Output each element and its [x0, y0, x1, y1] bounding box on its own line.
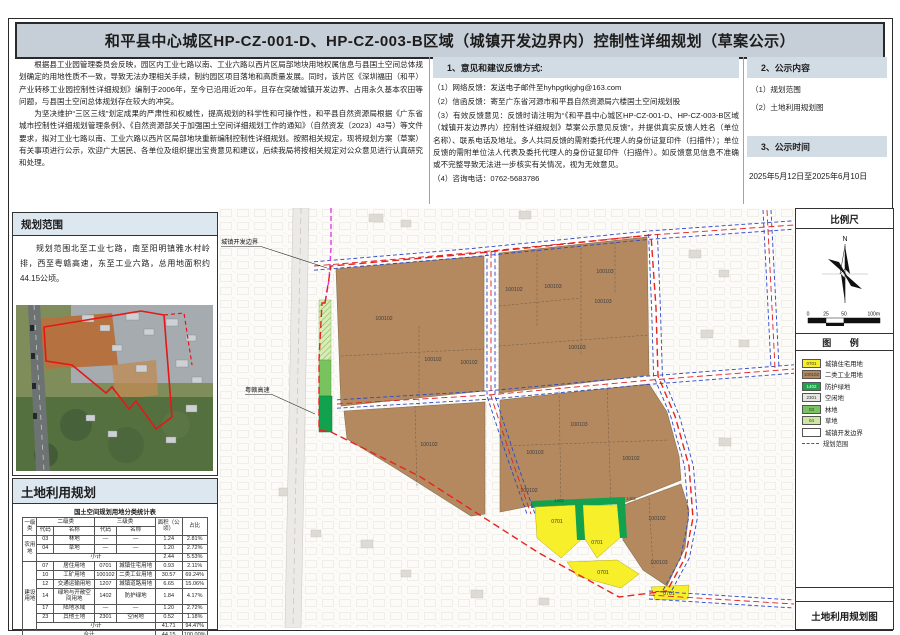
scale-tick-25: 25	[823, 312, 829, 318]
table-row: 10工矿用地 100102二类工业用地 30.5769.24%	[23, 571, 207, 580]
th-name2: 名称	[54, 526, 95, 535]
table-row: 04草地 —— 1.202.72%	[23, 544, 207, 553]
map-parcel-label: 0701	[591, 540, 603, 546]
table-row-subtotal: 小计 2.445.53%	[23, 553, 207, 562]
legend-item: 规划范围	[802, 439, 889, 448]
intro-paragraph-2: 为坚决维护“三区三线”划定成果的严肃性和权威性，提高规划的科学性和可操作性，和平…	[19, 108, 423, 169]
legend-label: 草地	[825, 416, 838, 425]
map-parcel-label: 0701	[597, 570, 609, 576]
feedback-heading: 1、意见和建议反馈方式:	[433, 57, 739, 78]
map-parcel-label: 100102	[375, 316, 392, 322]
compass-area: N 0 25 50 100m	[796, 229, 893, 333]
column-divider-2	[743, 57, 744, 204]
map-parcel-label: 100103	[526, 450, 543, 456]
legend-item: 1402 防护绿地	[802, 382, 889, 391]
landuse-map: 100102 100102 100102 100102 100103 10010…	[219, 208, 795, 628]
content-item-1: （1）规划范围	[751, 84, 887, 96]
legend-item: 2301 空闲地	[802, 393, 889, 402]
map-parcel-label: 100103	[650, 560, 667, 566]
feedback-item-valid: （3）有效反馈意见：反馈时请注明为“《和平县中心城区HP-CZ-001-D、HP…	[433, 110, 739, 171]
table-row: 12交通运输用地 1207城镇道路用地 6.6515.06%	[23, 580, 207, 589]
landuse-panel-heading: 土地利用规划	[13, 479, 217, 504]
cat-agricultural: 农用地	[23, 535, 37, 562]
publicity-period: 2025年5月12日至2025年6月10日	[749, 171, 887, 182]
map-parcel-label: 1402	[626, 496, 636, 501]
scalebar-heading: 比例尺	[796, 209, 893, 229]
table-row: 23其他土地 2301空闲地 0.521.18%	[23, 613, 207, 622]
map-parcel-label: 0701	[663, 591, 675, 597]
forest-swatch: 03	[802, 405, 821, 414]
legend-label: 二类工业用地	[825, 370, 863, 379]
table-row-total: 合计 44.15100.00%	[23, 631, 207, 635]
scale-tick-100: 100m	[867, 312, 880, 318]
aerial-photo	[16, 305, 213, 471]
expressway-annotation: 粤赣高速	[245, 386, 270, 394]
legend-label: 林地	[825, 405, 838, 414]
map-parcel-label: 100102	[520, 488, 537, 494]
legend-label: 城镇住宅用地	[825, 359, 863, 368]
grass-swatch: 04	[802, 416, 821, 425]
industrial-swatch: 100102	[802, 370, 821, 379]
map-parcel-label: 100102	[505, 287, 522, 293]
legend-item: 100102 二类工业用地	[802, 370, 889, 379]
feedback-section: 1、意见和建议反馈方式: （1）网络反馈：发送电子邮件至hyhpgtkjghg@…	[433, 57, 739, 187]
map-parcel-label: 100103	[570, 422, 587, 428]
scale-tick-50: 50	[841, 312, 847, 318]
dev-boundary-annotation: 城镇开发边界	[221, 238, 258, 246]
content-item-2: （2）土地利用规划图	[751, 102, 887, 114]
scope-description: 规划范围北至工业七路，南至阳明镇雅水村岭排，西至粤赣高速，东至工业六路，总用地面…	[13, 236, 217, 286]
scale-bar: 0 25 50 100m	[803, 309, 887, 331]
th-pct: 占比	[182, 518, 207, 536]
legend-label: 空闲地	[825, 393, 844, 402]
green-strips	[319, 300, 332, 432]
map-caption: 土地利用规划图	[796, 601, 893, 629]
time-heading: 3、公示时间	[747, 136, 887, 157]
map-parcel-label: 100103	[596, 269, 613, 275]
landuse-panel: 土地利用规划 国土空间规划用地分类统计表 一级类 二级类 三级类 面积（公顷） …	[12, 478, 218, 630]
map-parcel-label: 100102	[424, 357, 441, 363]
map-sidebar: 比例尺 N 0 25 50 100m	[795, 208, 894, 630]
th-area: 面积（公顷）	[155, 518, 182, 536]
dev-boundary-swatch	[802, 428, 821, 437]
right-info-column: 2、公示内容 （1）规划范围 （2）土地利用规划图 3、公示时间 2025年5月…	[747, 57, 887, 182]
th-level3: 三级类	[95, 518, 155, 527]
feedback-item-mail: （2）信函反馈：寄至广东省河源市和平县自然资源局六楼国土空间规划股	[433, 96, 739, 108]
th-code2: 代码	[37, 526, 54, 535]
legend-label: 规划范围	[823, 439, 848, 448]
legend-item: 04 草地	[802, 416, 889, 425]
table-row-subtotal: 小计 41.7194.47%	[23, 622, 207, 631]
residential-swatch: 0701	[802, 359, 821, 368]
content-heading: 2、公示内容	[747, 57, 887, 78]
table-row: 农用地 03林地 —— 1.242.81%	[23, 535, 207, 544]
intro-text: 根据县工业园管理委员会反映，园区内工业七路以南、工业六路以西片区局部地块用地权属…	[19, 59, 423, 170]
map-parcel-label: 100102	[622, 456, 639, 462]
aerial-photo-svg	[16, 305, 213, 471]
sidebar-spacer	[796, 453, 893, 588]
map-parcel-label: 100103	[544, 284, 561, 290]
table-row: 建设用地 07居住用地 0701城镇住宅用地 0.932.11%	[23, 562, 207, 571]
map-parcel-label: 100103	[594, 299, 611, 305]
map-parcel-label: 100103	[568, 345, 585, 351]
map-parcel-label: 0701	[551, 519, 563, 525]
map-parcel-label: 100102	[420, 442, 437, 448]
legend-item: 0701 城镇住宅用地	[802, 359, 889, 368]
table-row: 14绿地与开敞空间用地 1402防护绿地 1.844.17%	[23, 589, 207, 605]
legend-item: 城镇开发边界	[802, 428, 889, 437]
north-arrow: N	[814, 231, 876, 309]
column-divider-1	[429, 57, 430, 204]
th-level1: 一级类	[23, 518, 37, 536]
legend-list: 0701 城镇住宅用地 100102 二类工业用地 1402 防护绿地 2301…	[796, 351, 893, 453]
vacant-land-swatch: 2301	[802, 393, 821, 402]
legend-heading: 图 例	[796, 333, 893, 351]
scale-tick-0: 0	[806, 312, 809, 318]
th-name3: 名称	[116, 526, 155, 535]
map-parcel-label: 100102	[648, 516, 665, 522]
protective-green-swatch: 1402	[802, 382, 821, 391]
north-label: N	[842, 236, 847, 243]
cat-construction: 建设用地	[23, 562, 37, 631]
map-parcel-label: 100102	[460, 360, 477, 366]
feedback-item-email: （1）网络反馈：发送电子邮件至hyhpgtkjghg@163.com	[433, 82, 739, 94]
th-level2: 二级类	[37, 518, 95, 527]
landuse-map-svg: 100102 100102 100102 100102 100103 10010…	[219, 208, 795, 628]
planning-notice-sheet: 和平县中心城区HP-CZ-001-D、HP-CZ-003-B区域（城镇开发边界内…	[0, 0, 900, 635]
scope-panel: 规划范围 规划范围北至工业七路，南至阳明镇雅水村岭排，西至粤赣高速，东至工业六路…	[12, 212, 218, 476]
map-parcel-label: 1402	[554, 498, 564, 503]
legend-label: 防护绿地	[825, 382, 850, 391]
table-row: 17陆地水域 —— 1.202.72%	[23, 604, 207, 613]
sidebar-blank-row	[796, 587, 893, 601]
landuse-table-title: 国土空间规划用地分类统计表	[13, 507, 217, 516]
legend-label: 城镇开发边界	[825, 428, 863, 437]
th-code3: 代码	[95, 526, 116, 535]
scope-panel-heading: 规划范围	[13, 213, 217, 236]
page-title: 和平县中心城区HP-CZ-001-D、HP-CZ-003-B区域（城镇开发边界内…	[15, 22, 885, 59]
scope-line-swatch	[802, 443, 819, 444]
legend-item: 03 林地	[802, 405, 889, 414]
landuse-table: 一级类 二级类 三级类 面积（公顷） 占比 代码 名称 代码 名称 农用地 03…	[22, 517, 207, 635]
intro-paragraph-1: 根据县工业园管理委员会反映，园区内工业七路以南、工业六路以西片区局部地块用地权属…	[19, 59, 423, 108]
feedback-item-phone: （4）咨询电话：0762-5683786	[433, 173, 739, 185]
